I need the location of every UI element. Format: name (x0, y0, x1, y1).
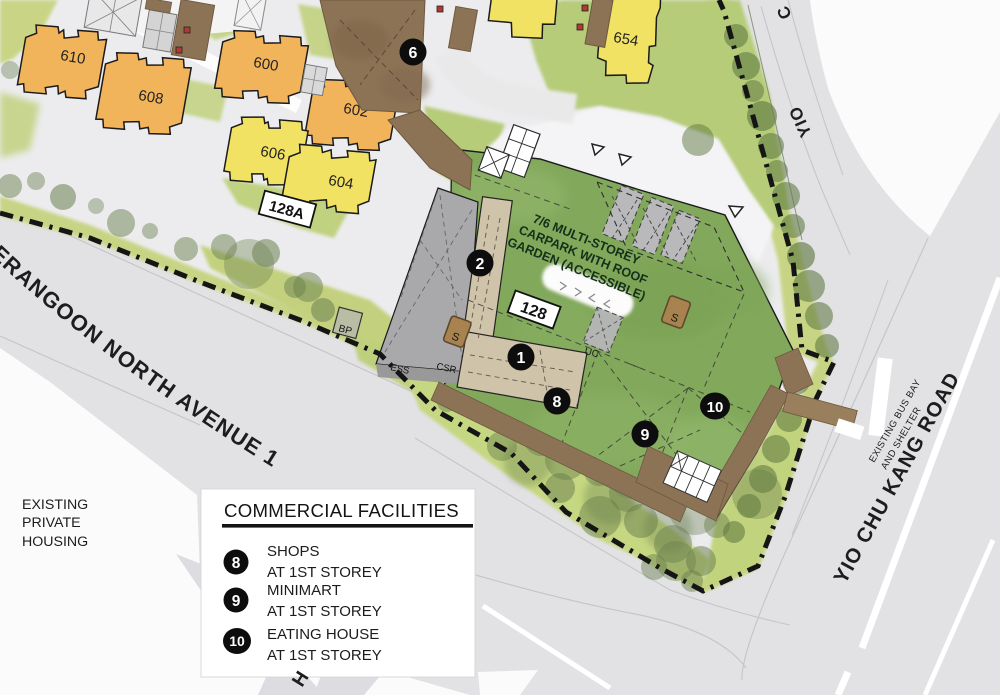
svg-text:HOUSING: HOUSING (22, 534, 88, 550)
svg-text:PRIVATE: PRIVATE (22, 515, 81, 531)
svg-text:AT 1ST STOREY: AT 1ST STOREY (267, 564, 382, 581)
svg-text:6: 6 (409, 45, 418, 62)
svg-text:MINIMART: MINIMART (267, 582, 341, 599)
svg-text:SHOPS: SHOPS (267, 543, 320, 560)
svg-text:EATING HOUSE: EATING HOUSE (267, 626, 379, 643)
svg-text:AT 1ST STOREY: AT 1ST STOREY (267, 603, 382, 620)
svg-text:9: 9 (641, 427, 650, 444)
svg-text:EXISTING: EXISTING (22, 497, 88, 513)
svg-text:8: 8 (553, 394, 562, 411)
svg-text:10: 10 (229, 633, 245, 649)
svg-text:COMMERCIAL FACILITIES: COMMERCIAL FACILITIES (224, 500, 459, 521)
svg-text:10: 10 (707, 399, 724, 416)
svg-text:2: 2 (476, 256, 485, 273)
svg-text:9: 9 (232, 593, 241, 610)
svg-text:AT 1ST STOREY: AT 1ST STOREY (267, 647, 382, 664)
svg-text:1: 1 (517, 350, 526, 367)
svg-text:8: 8 (232, 555, 241, 572)
